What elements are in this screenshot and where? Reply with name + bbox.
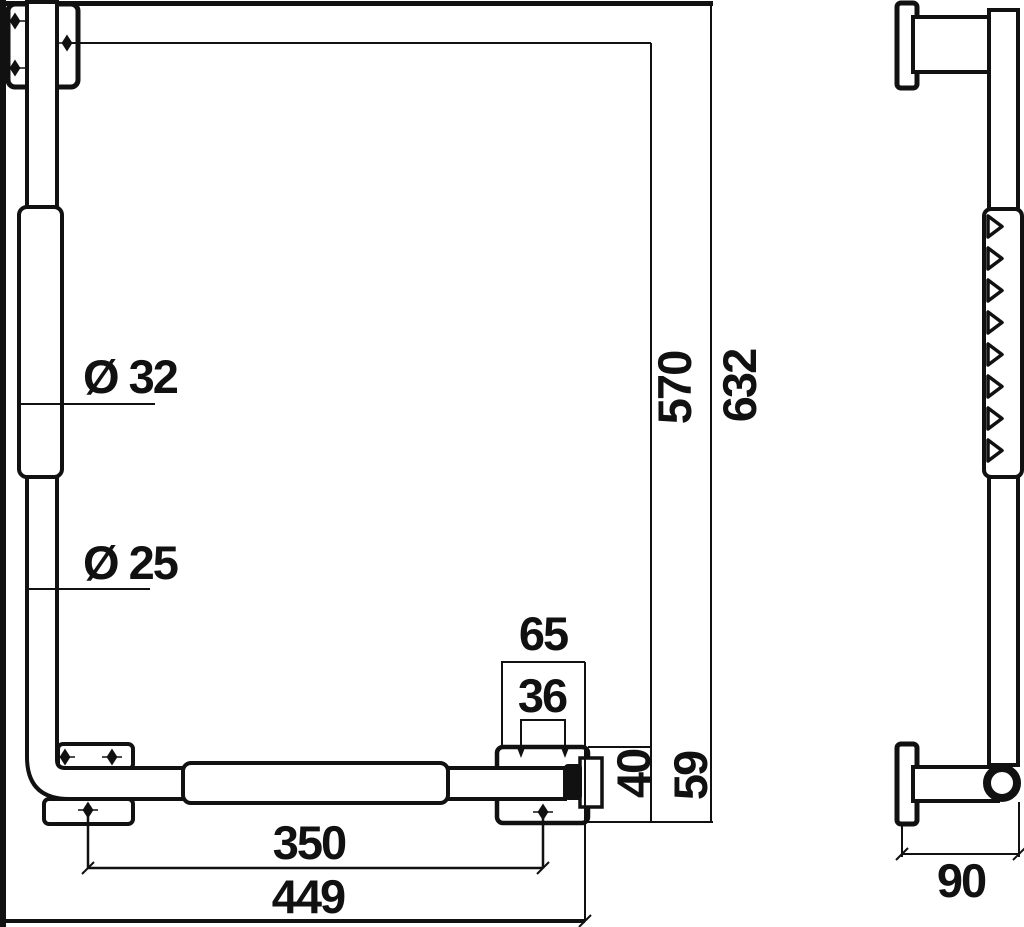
end-flange (580, 758, 602, 807)
side-view: 90 (896, 3, 1024, 907)
dim-label-40: 40 (607, 749, 660, 798)
dim-label-90: 90 (937, 854, 986, 907)
screw-marks (5, 14, 553, 819)
dim-label-570: 570 (648, 351, 701, 424)
grab-bar-drawing: Ø 32 Ø 25 65 36 350 449 570 632 40 59 (0, 0, 1024, 927)
dim-label-36: 36 (518, 669, 567, 722)
dim-label-59: 59 (664, 751, 717, 800)
dim-label-632: 632 (713, 349, 766, 422)
dim-label-65: 65 (519, 607, 568, 660)
top-extension-line (6, 1, 713, 6)
side-stem-top (913, 17, 992, 72)
dim-label-dia32: Ø 32 (83, 350, 178, 403)
front-view: Ø 32 Ø 25 65 36 350 449 570 632 40 59 (0, 0, 766, 927)
dim-label-350: 350 (273, 816, 346, 869)
bar-end-ring (987, 768, 1017, 798)
vertical-grip-section (19, 207, 62, 477)
dim-label-449: 449 (272, 870, 345, 923)
bar-end-cap (564, 764, 582, 800)
horizontal-grip-section (183, 763, 448, 803)
dim-label-dia25: Ø 25 (83, 536, 178, 589)
wall-line (0, 0, 6, 927)
technical-drawing-page: Ø 32 Ø 25 65 36 350 449 570 632 40 59 (0, 0, 1024, 927)
